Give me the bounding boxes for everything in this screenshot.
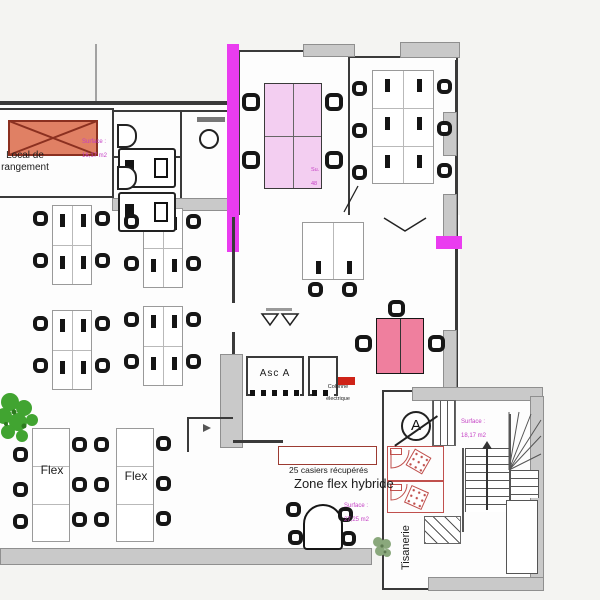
plant-icon bbox=[370, 534, 394, 560]
chair bbox=[428, 335, 445, 352]
chair bbox=[341, 531, 356, 546]
chair bbox=[124, 312, 139, 327]
chair bbox=[352, 123, 367, 138]
surface-value: 16,17 m2 bbox=[82, 153, 126, 160]
wall bbox=[443, 194, 457, 238]
chair bbox=[124, 214, 139, 229]
wall bbox=[428, 577, 544, 591]
chair bbox=[33, 358, 48, 373]
chair bbox=[124, 256, 139, 271]
surface-value: 48 bbox=[311, 181, 335, 188]
chair bbox=[355, 335, 372, 352]
surface-title: Surface : bbox=[461, 419, 497, 426]
elevator-asc-a: Asc A bbox=[246, 356, 304, 396]
room-label-storage: Local de rangement bbox=[0, 150, 68, 174]
chair bbox=[33, 253, 48, 268]
surface-label-stairs: Surface : 18,17 m2 bbox=[461, 419, 497, 440]
locker-row bbox=[278, 446, 377, 465]
chair bbox=[437, 121, 452, 136]
chair bbox=[186, 214, 201, 229]
flex-table-label: Flex bbox=[33, 463, 71, 477]
stair-wall bbox=[462, 448, 464, 532]
chair bbox=[156, 436, 171, 451]
chair bbox=[95, 316, 110, 331]
chair bbox=[124, 354, 139, 369]
surface-title: Surface : bbox=[82, 139, 126, 146]
chair bbox=[286, 502, 301, 517]
chair bbox=[95, 211, 110, 226]
elevator-label: Asc A bbox=[248, 368, 302, 379]
wall bbox=[232, 332, 235, 356]
highlighted-wall-magenta bbox=[436, 236, 462, 249]
chair bbox=[94, 477, 109, 492]
stairs-direction-arrow bbox=[482, 441, 492, 449]
chair bbox=[13, 482, 28, 497]
lockers-label: 25 casiers récupérés bbox=[280, 465, 377, 475]
rose-table bbox=[376, 318, 424, 374]
toilet-icon bbox=[117, 166, 137, 190]
door-swing-icon bbox=[342, 184, 360, 214]
surface-title: Surface : bbox=[344, 503, 374, 510]
round-table bbox=[303, 504, 343, 550]
mirror-icon bbox=[197, 117, 225, 122]
wall bbox=[95, 44, 97, 101]
wall bbox=[303, 44, 355, 57]
surface-label-zone: Surface : 27,25 m2 bbox=[344, 503, 374, 524]
stair-wall bbox=[509, 414, 511, 512]
chair bbox=[186, 354, 201, 369]
chair bbox=[72, 512, 87, 527]
stairs-upper-flight bbox=[432, 400, 456, 446]
chair bbox=[156, 476, 171, 491]
chair bbox=[95, 253, 110, 268]
surface-title: Su. bbox=[311, 167, 335, 174]
chair bbox=[325, 93, 343, 111]
floor-plan: Flex Flex Asc A bbox=[0, 0, 600, 600]
desk-cluster bbox=[52, 310, 92, 390]
desk-cluster bbox=[372, 70, 434, 184]
surface-value: 18,17 m2 bbox=[461, 433, 497, 440]
stair-landing bbox=[506, 500, 538, 574]
electrical-column-label: Colonne électrique bbox=[312, 384, 364, 402]
chair bbox=[94, 512, 109, 527]
electrical-line2: électrique bbox=[312, 396, 364, 402]
chair bbox=[352, 165, 367, 180]
tisanerie-label: Tisanerie bbox=[400, 496, 416, 570]
stairs-direction-line bbox=[486, 448, 488, 510]
wall bbox=[233, 440, 283, 443]
wall bbox=[187, 417, 233, 419]
zone-flex-label: Zone flex hybride bbox=[294, 476, 410, 491]
chair bbox=[13, 514, 28, 529]
surface-label-storage: Surface : 16,17 m2 bbox=[82, 139, 126, 160]
stairs-right-flight bbox=[509, 470, 539, 498]
desk-cluster bbox=[302, 222, 364, 280]
wall bbox=[412, 387, 543, 401]
desk-cluster bbox=[143, 306, 183, 386]
chair bbox=[388, 300, 405, 317]
chair bbox=[72, 437, 87, 452]
sink-icon bbox=[199, 129, 219, 149]
wall bbox=[0, 548, 372, 565]
wall bbox=[232, 217, 235, 303]
flex-table: Flex bbox=[116, 428, 154, 542]
door-marker bbox=[203, 424, 211, 432]
chair bbox=[94, 437, 109, 452]
chair bbox=[186, 312, 201, 327]
chair bbox=[156, 511, 171, 526]
chair bbox=[352, 81, 367, 96]
wall bbox=[443, 330, 457, 390]
chair bbox=[13, 447, 28, 462]
chair bbox=[437, 163, 452, 178]
chair bbox=[72, 477, 87, 492]
surface-label-meeting: Su. 48 bbox=[311, 167, 335, 188]
chair bbox=[95, 358, 110, 373]
wall bbox=[0, 101, 238, 105]
stairs-small-flight bbox=[424, 516, 461, 544]
door-opening bbox=[252, 210, 282, 218]
desk-cluster bbox=[52, 205, 92, 285]
electrical-line1: Colonne bbox=[312, 384, 364, 390]
flex-table-label: Flex bbox=[117, 469, 155, 483]
double-door-icon bbox=[382, 216, 428, 234]
wall bbox=[187, 419, 189, 452]
chair bbox=[288, 530, 303, 545]
chair bbox=[308, 282, 323, 297]
chair bbox=[342, 282, 357, 297]
chair bbox=[242, 151, 260, 169]
wall bbox=[400, 42, 460, 58]
chair bbox=[186, 256, 201, 271]
chair bbox=[33, 211, 48, 226]
stools-icon bbox=[258, 306, 304, 332]
chair bbox=[33, 316, 48, 331]
plant-icon bbox=[0, 390, 48, 446]
wall bbox=[220, 354, 243, 448]
stairs-winder-icon bbox=[507, 410, 543, 472]
chair bbox=[242, 93, 260, 111]
surface-value: 27,25 m2 bbox=[344, 517, 374, 524]
chair bbox=[437, 79, 452, 94]
